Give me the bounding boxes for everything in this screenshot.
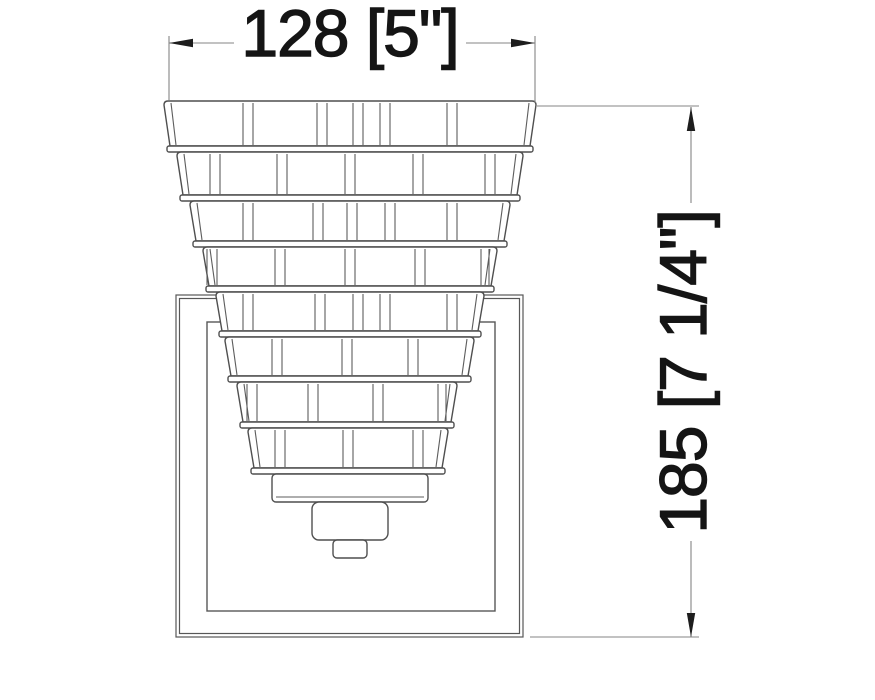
tier-face [203,247,497,286]
bottom-step-2 [312,502,388,540]
tier-lip [167,146,533,152]
arrow-up-icon [687,107,695,131]
tier-face [216,292,484,331]
bottom-step-3 [333,540,367,558]
tier-face [177,152,523,195]
sconce-elevation-drawing: 128 [5"] 185 [7 1/4"] [0,0,875,700]
tier-lip [251,468,445,474]
shade-tier-7 [237,382,457,428]
tier-lip [240,422,454,428]
height-dimension: 185 [7 1/4"] [530,106,720,637]
tier-face [248,428,448,468]
tier-lip [219,331,481,337]
shade-tier-8 [248,428,448,474]
bottom-step-1 [272,474,428,502]
tier-face [237,382,457,422]
shade-tier-2 [177,152,523,201]
tier-face [164,101,536,146]
tier-face [225,337,474,376]
height-dimension-label: 185 [7 1/4"] [646,210,720,533]
tier-lip [193,241,507,247]
shade-tier-4 [203,247,497,292]
tier-lip [206,286,494,292]
shade-tier-6 [225,337,474,382]
arrow-right-icon [511,39,535,47]
tier-face [190,201,510,241]
arrow-down-icon [687,613,695,637]
drawing-canvas: 128 [5"] 185 [7 1/4"] [0,0,875,700]
width-dimension: 128 [5"] [169,0,535,103]
arrow-left-icon [169,39,193,47]
shade-tier-5 [216,292,484,337]
tier-lip [180,195,520,201]
shade-tier-1 [164,101,536,152]
width-dimension-label: 128 [5"] [241,0,458,70]
tier-lip [228,376,471,382]
shade-tier-3 [190,201,510,247]
